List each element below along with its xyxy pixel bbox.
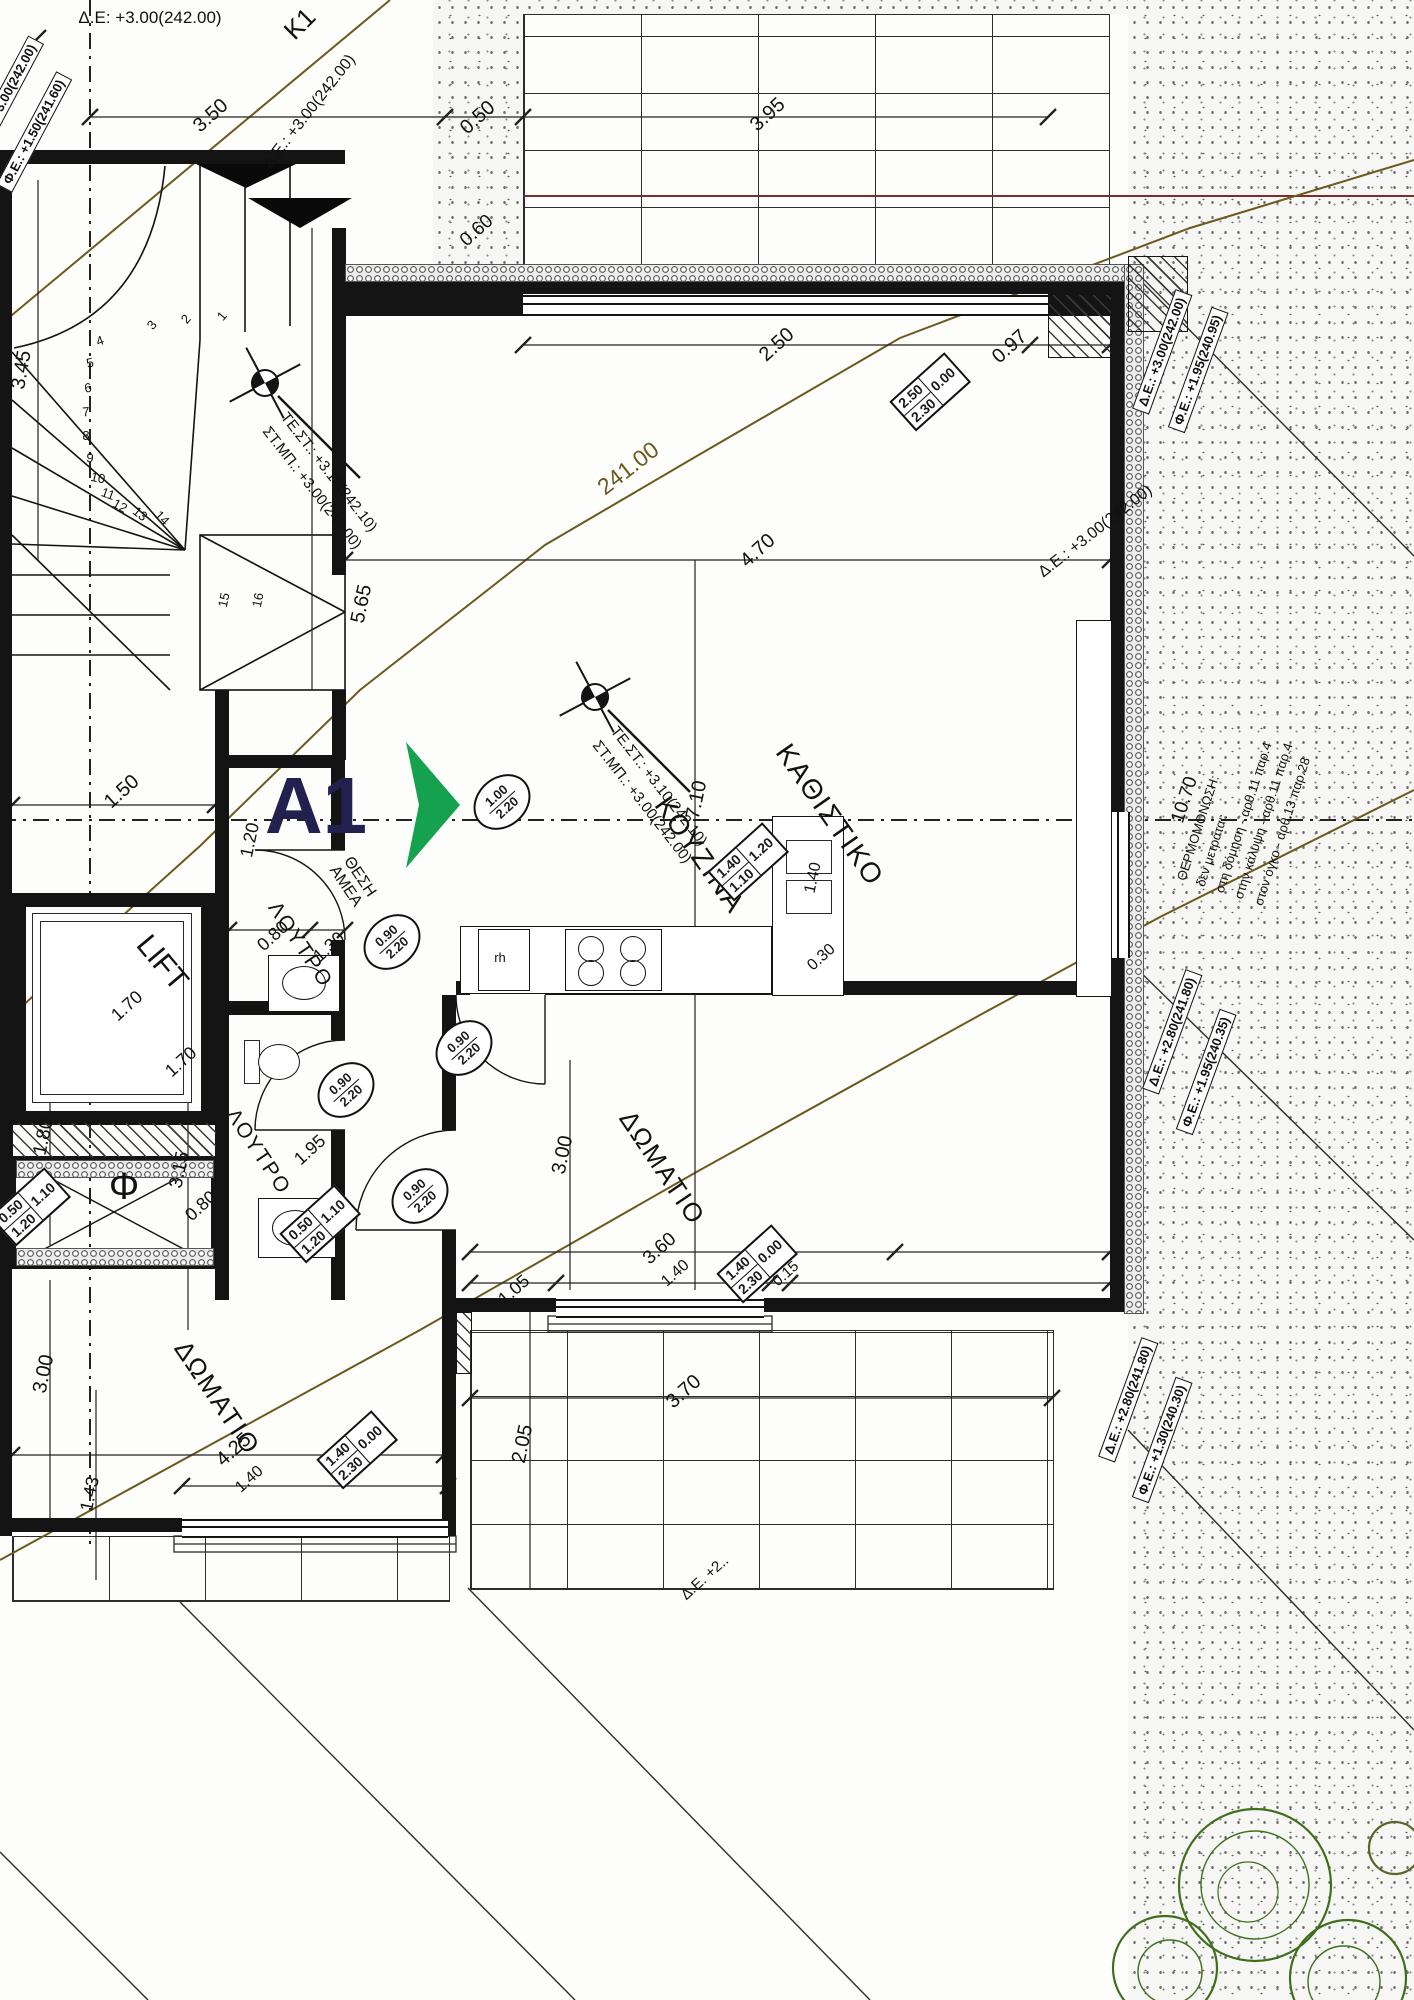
plan-label: Φ [109, 1168, 139, 1208]
wall-segment [12, 893, 26, 1125]
wall-segment [0, 150, 345, 164]
insulation-right [1124, 264, 1144, 1314]
wall-segment [332, 690, 346, 760]
stair-number: 7 [82, 405, 90, 419]
stair-number: 9 [86, 451, 94, 465]
kitchen-stove [565, 929, 662, 991]
insulation-top [345, 264, 1130, 282]
stair-number: 15 [216, 592, 232, 609]
window-bed1 [556, 1299, 764, 1318]
stove-burner [578, 960, 604, 986]
wall-segment [764, 1298, 1124, 1312]
stove-burner [578, 936, 604, 962]
window-sills [174, 1316, 772, 1552]
entrance-triangle-stair [196, 164, 296, 188]
window-bed2 [182, 1519, 448, 1538]
wall-segment [448, 1518, 456, 1536]
kitchen-counter-right [1076, 620, 1112, 997]
stove-burner [620, 960, 646, 986]
wall-segment [345, 280, 1128, 294]
wall-segment [1110, 280, 1124, 812]
entrance-triangle-outer [248, 198, 352, 228]
wall-segment [1110, 958, 1124, 1312]
floor-plan-canvas: Δ.Ε: +3.00(242.00)K1Δ.Ε.: +3.00(242.00)Δ… [0, 0, 1414, 2000]
wall-segment [442, 1312, 456, 1536]
plan-label: Δ.Ε: +3.00(242.00) [78, 9, 221, 27]
wall-segment [201, 893, 215, 1125]
plants [1113, 1809, 1414, 2000]
wall-segment [0, 150, 12, 1536]
plan-label: rh [494, 951, 506, 965]
wall-segment [12, 893, 215, 907]
shaft-edge-bottom [16, 1248, 214, 1266]
hatch-corner-bed1 [456, 1312, 472, 1374]
hatch-corner-top-right-in [1048, 294, 1112, 358]
door-arcs [255, 850, 545, 1230]
window-kitchen-right [1109, 812, 1130, 958]
window-living-top [523, 295, 1048, 316]
stair-number: 8 [82, 429, 89, 443]
stove-burner [620, 936, 646, 962]
plan-label: A1 [265, 764, 367, 848]
wall-segment [345, 294, 523, 316]
stair-number: 16 [250, 592, 266, 609]
wall-segment [215, 690, 229, 1300]
wall-segment [0, 1518, 182, 1532]
bath2-toilet [258, 1044, 300, 1080]
